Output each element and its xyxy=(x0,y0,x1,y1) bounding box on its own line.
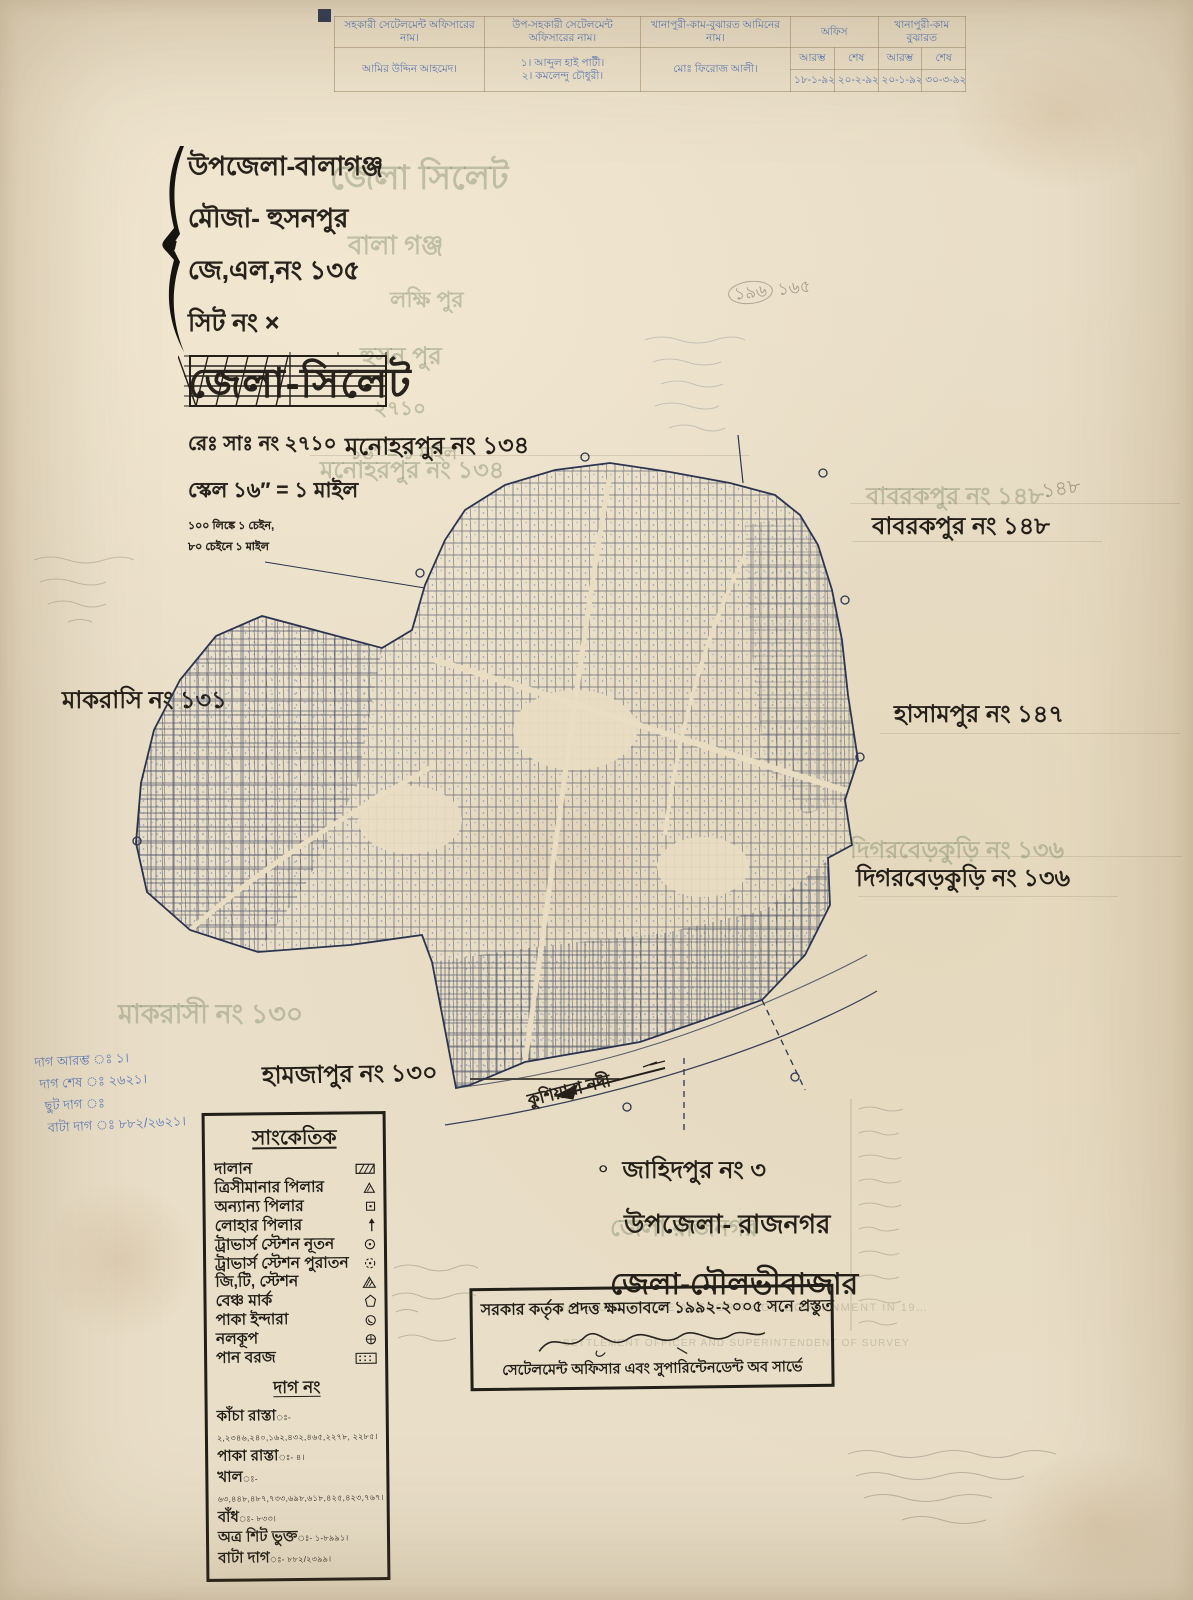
khana-start-label: আরম্ভ xyxy=(878,48,922,70)
pencil-scribbles-left-mid xyxy=(28,548,208,628)
dag-label: খাল xyxy=(217,1468,243,1485)
jl-number: জে,এল,নং ১৩৫ xyxy=(188,250,412,294)
legend-label: পান বরজ xyxy=(216,1349,276,1369)
office-start-label: আরম্ভ xyxy=(791,48,835,70)
survey-line xyxy=(265,562,425,588)
iron-pillar-icon xyxy=(368,1218,376,1232)
legend-label: ট্রাভার্স স্টেশন পুরাতন xyxy=(215,1254,349,1274)
square-dot-icon xyxy=(365,1201,375,1211)
jahidpur-line: ০জাহিদপুর নং ৩ xyxy=(598,1152,858,1192)
pencil-note-148: ১৪৮ xyxy=(1040,471,1083,509)
paper-stain xyxy=(40,1180,200,1340)
pencil-scribbles-near-legend xyxy=(388,1258,488,1348)
legend-item-paka-indara: পাকা ইন্দারা xyxy=(216,1310,377,1331)
pencil-scribbles-right-column xyxy=(845,1095,925,1335)
signature-scribble xyxy=(527,1322,777,1359)
legend-item-other-pillar: অন্যান্য পিলার xyxy=(214,1197,375,1218)
dag-label: পাকা রাস্তা xyxy=(217,1448,278,1466)
authority-stamp-box: সরকার কর্তৃক প্রদত্ত ক্ষমতাবলে ১৯৯২-২০০৫… xyxy=(469,1284,834,1391)
office-end-label: শেষ xyxy=(834,48,878,70)
stamp-line-1: সরকার কর্তৃক প্রদত্ত ক্ষমতাবলে ১৯৯২-২০০৫… xyxy=(480,1293,822,1324)
table-sub-row: আমির উদ্দিন আহমেদ। ১। আব্দুল হাই পাটী। ২… xyxy=(335,48,966,70)
dag-row-khal: খালঃ- ৬৩,৪৪৮,৪৮৭,৭৩৩,৬৯৮,৬১৮,৪২৫,৪২৩,৭৬৭… xyxy=(217,1466,378,1508)
legend-item-trijunction-pillar: ত্রিসীমানার পিলার xyxy=(214,1178,375,1199)
dag-value: ঃ- ৪। xyxy=(278,1453,304,1462)
dag-row-sheet-included: অত্র শিট ভুক্তঃ- ১-৮৯৯১। xyxy=(218,1527,379,1549)
legend-item-gt-station: জি,টি, স্টেশন xyxy=(215,1273,376,1294)
col3-header: খানাপুরী-কাম-বুঝারত আমিনের নাম। xyxy=(641,17,791,48)
sub-officer-1: ১। আব্দুল হাই পাটী। xyxy=(488,57,637,70)
neighbor-label-east: হাসামপুর নং ১৪৭ xyxy=(894,696,1064,736)
rajnagar-upazila-label: উপজেলা- রাজনগর xyxy=(624,1209,830,1239)
dag-margin-notes: দাগ আরম্ভ ঃ ১। দাগ শেষ ঃ ২৬২১। ছুট দাগ ঃ… xyxy=(34,1044,187,1140)
jahidpur-label: জাহিদপুর নং ৩ xyxy=(622,1157,766,1184)
circle-crescent-icon xyxy=(365,1314,377,1326)
cadastral-map-drawing xyxy=(105,435,885,1135)
circle-dot-icon xyxy=(364,1238,376,1250)
legend-item-pan-boroj: পান বরজ xyxy=(216,1348,377,1369)
benchmark-pentagon-icon xyxy=(364,1294,376,1307)
legend-label: নলকূপ xyxy=(216,1331,258,1350)
upazila-title: উপজেলা-বালাগঞ্জ xyxy=(188,146,412,190)
pencil-circle: ১৯৬ xyxy=(727,279,774,307)
dag-label: কাঁচা রাস্তা xyxy=(217,1407,276,1425)
diagonal-scale-bar xyxy=(178,350,394,410)
dag-row-bandh: বাঁধঃ- ৮৩৩। xyxy=(218,1506,379,1528)
dag-row-bata-dag: বাটা দাগঃ- ৮৮২/২৩৯৯। xyxy=(218,1547,379,1569)
dag-label: বাটা দাগ xyxy=(218,1549,270,1567)
dag-value: ঃ- ১-৮৯৯১। xyxy=(297,1534,348,1544)
office-header: অফিস xyxy=(791,17,879,48)
legend-label: লোহার পিলার xyxy=(215,1217,303,1237)
hatched-rect-icon xyxy=(355,1163,375,1174)
pencil-note-circled: ১৯৬ ১৬৫ xyxy=(727,274,812,311)
dag-value: ঃ- ৮৮২/২৩৯৯। xyxy=(270,1554,332,1564)
sub-officer-names: ১। আব্দুল হাই পাটী। ২। কমলেন্দু চৌধুরী। xyxy=(485,48,641,92)
legend-item-tubewell: নলকূপ xyxy=(216,1329,377,1350)
legend-box: সাংকেতিক দালান ত্রিসীমানার পিলার অন্যান্… xyxy=(202,1111,391,1582)
legend-item-iron-pillar: লোহার পিলার xyxy=(215,1216,376,1237)
amin-name: মোঃ ফিরোজ আলী। xyxy=(641,48,791,92)
sheet-number: সিট নং × xyxy=(188,303,412,346)
dag-value: ঃ- ৮৩৩। xyxy=(239,1514,276,1523)
dag-row-kacha-rasta: কাঁচা রাস্তাঃ- ২,২৩৪৬,২৪০,১৬২,৪৩২,৪৬৫,২২… xyxy=(217,1405,378,1447)
officer-name: আমির উদ্দিন আহমেদ। xyxy=(335,48,485,92)
pencil-number: ১৬৫ xyxy=(777,277,812,299)
survey-officers-table: সহকারী সেটেলমেন্ট অফিসারের নাম। উপ-সহকার… xyxy=(334,16,966,92)
dag-label: বাঁধ xyxy=(218,1509,239,1526)
dag-label: অত্র শিট ভুক্ত xyxy=(218,1528,298,1546)
legend-label: দালান xyxy=(214,1160,252,1179)
survey-line xyxy=(738,435,743,483)
neighbor-ghost-northeast: বাবরকপুর নং ১৪৮ xyxy=(866,478,1044,518)
col2-header: উপ-সহকারী সেটেলমেন্ট অফিসারের নাম। xyxy=(485,17,641,48)
circle-dot-dashed-icon xyxy=(364,1257,376,1269)
dag-value: ঃ- ৬৩,৪৪৮,৪৮৭,৭৩৩,৬৯৮,৬১৮,৪২৫,৪২৩,৭৬৭। xyxy=(218,1474,384,1504)
col1-header: সহকারী সেটেলমেন্ট অফিসারের নাম। xyxy=(335,17,485,48)
khana-end-date: ৩০-৩-৯২ xyxy=(922,70,966,92)
stamp-line-3: সেটেলমেন্ট অফিসার এবং সুপারিন্টেনডেন্ট অ… xyxy=(481,1356,823,1384)
legend-label: জি,টি, স্টেশন xyxy=(215,1273,298,1293)
open-field xyxy=(657,837,749,897)
pencil-scribbles-bottom-right xyxy=(842,1442,1092,1532)
scanned-cadastral-map-sheet: সহকারী সেটেলমেন্ট অফিসারের নাম। উপ-সহকার… xyxy=(0,0,1193,1600)
khana-start-date: ২০-১-৯২ xyxy=(878,70,922,92)
paper-stain xyxy=(950,40,1170,190)
circle-cross-icon xyxy=(365,1333,377,1345)
triangle-outline-icon xyxy=(363,1182,375,1193)
triangle-hatched-icon xyxy=(362,1276,376,1288)
title-bracket-ornament xyxy=(158,146,192,352)
legend-title: সাংকেতিক xyxy=(214,1122,375,1157)
sub-officer-2: ২। কমলেন্দু চৌধুরী। xyxy=(488,70,637,83)
legend-item-building: দালান xyxy=(214,1159,375,1180)
office-start-date: ১৮-১-৯২ xyxy=(791,70,835,92)
legend-item-traverse-new: ট্রাভার্স স্টেশন নূতন xyxy=(215,1235,376,1256)
mouza-title: মৌজা- হুসনপুর xyxy=(188,198,412,242)
khana-end-label: শেষ xyxy=(922,48,966,70)
dag-section-title: দাগ নং xyxy=(216,1374,377,1404)
legend-label: ত্রিসীমানার পিলার xyxy=(214,1179,324,1199)
dag-row-paka-rasta: পাকা রাস্তাঃ- ৪। xyxy=(217,1446,378,1468)
open-field xyxy=(358,786,462,854)
boundary-dot-mark: ০ xyxy=(598,1161,608,1178)
legend-label: বেঞ্চ মার্ক xyxy=(215,1293,272,1312)
office-end-date: ২০-২-৯২ xyxy=(834,70,878,92)
khana-header: খানাপুরী-কাম বুঝারত xyxy=(878,17,966,48)
legend-label: ট্রাভার্স স্টেশন নূতন xyxy=(215,1235,335,1255)
legend-label: অন্যান্য পিলার xyxy=(214,1198,303,1218)
pencil-scribbles-map-upper-right xyxy=(625,330,825,440)
legend-item-benchmark: বেঞ্চ মার্ক xyxy=(215,1291,376,1312)
dotted-rect-icon xyxy=(355,1352,377,1364)
table-corner-mark xyxy=(318,9,331,22)
legend-label: পাকা ইন্দারা xyxy=(216,1311,289,1331)
table-header-row: সহকারী সেটেলমেন্ট অফিসারের নাম। উপ-সহকার… xyxy=(335,17,966,48)
legend-item-traverse-old: ট্রাভার্স স্টেশন পুরাতন xyxy=(215,1254,376,1275)
